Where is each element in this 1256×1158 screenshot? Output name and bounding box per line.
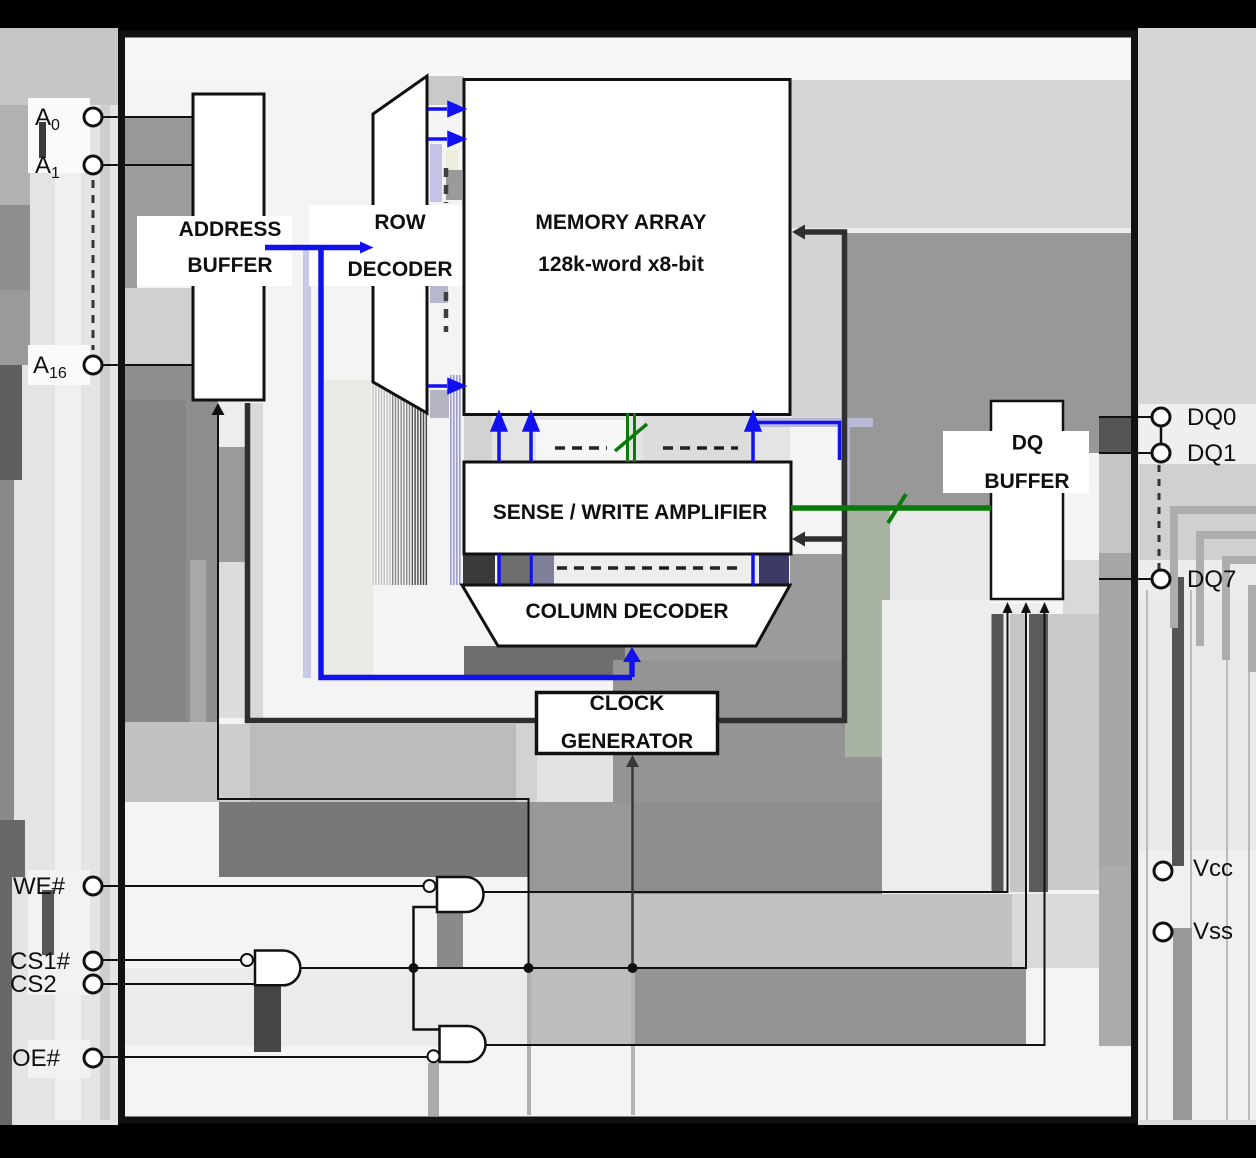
svg-text:OE#: OE# <box>12 1045 61 1072</box>
svg-text:DQ7: DQ7 <box>1187 566 1236 593</box>
svg-text:128k-word x8-bit: 128k-word x8-bit <box>538 253 704 276</box>
svg-text:Vcc: Vcc <box>1193 855 1233 882</box>
svg-text:CLOCK: CLOCK <box>590 692 665 715</box>
svg-text:WE#: WE# <box>13 873 66 900</box>
svg-text:DECODER: DECODER <box>347 258 452 281</box>
svg-text:ROW: ROW <box>374 211 426 234</box>
svg-text:DQ0: DQ0 <box>1187 404 1236 431</box>
svg-text:ADDRESS: ADDRESS <box>179 218 282 241</box>
svg-text:CS2: CS2 <box>10 971 57 998</box>
svg-text:SENSE / WRITE AMPLIFIER: SENSE / WRITE AMPLIFIER <box>493 501 768 524</box>
svg-text:Vss: Vss <box>1193 918 1233 945</box>
svg-text:DQ1: DQ1 <box>1187 440 1236 467</box>
svg-text:BUFFER: BUFFER <box>187 254 272 277</box>
svg-text:GENERATOR: GENERATOR <box>561 730 693 753</box>
svg-text:DQ: DQ <box>1012 432 1044 455</box>
svg-text:BUFFER: BUFFER <box>984 470 1069 493</box>
svg-text:MEMORY ARRAY: MEMORY ARRAY <box>535 211 706 234</box>
svg-text:COLUMN DECODER: COLUMN DECODER <box>526 600 729 623</box>
